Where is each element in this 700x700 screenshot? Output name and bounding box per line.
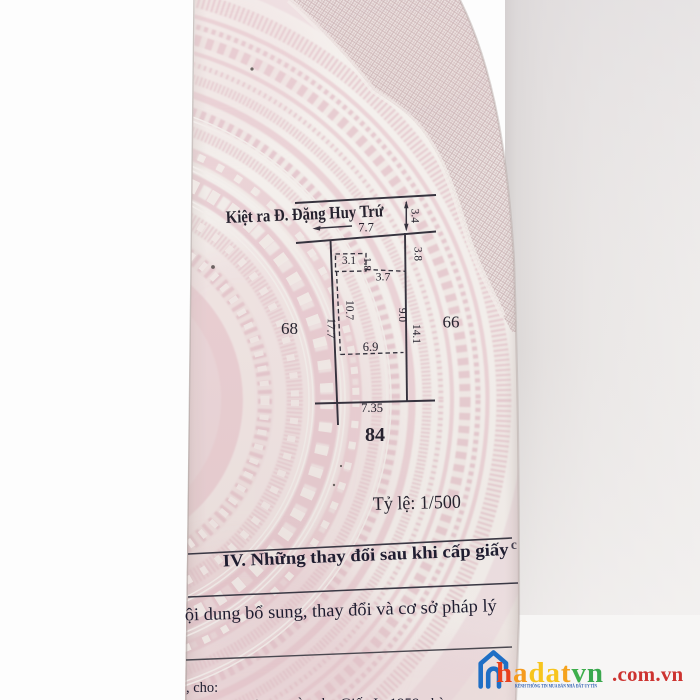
svg-text:, cho:: , cho:: [186, 680, 218, 696]
svg-text:KÊNH THÔNG TIN MUA BÁN NHÀ ĐẤT: KÊNH THÔNG TIN MUA BÁN NHÀ ĐẤT UY TÍN: [515, 684, 597, 690]
svg-text:3.7: 3.7: [376, 270, 391, 284]
svg-text:14.1: 14.1: [410, 324, 422, 344]
svg-text:84: 84: [365, 424, 385, 446]
svg-text:.com.vn: .com.vn: [612, 662, 684, 686]
svg-text:7.7: 7.7: [358, 221, 374, 235]
svg-text:17.7: 17.7: [324, 318, 338, 339]
svg-text:trang này cho Giấy In 1959 nhà: trang này cho Giấy In 1959 nhà: [255, 696, 445, 700]
svg-text:c: c: [511, 537, 518, 552]
svg-text:10.7: 10.7: [343, 300, 355, 320]
svg-text:9.0: 9.0: [396, 308, 408, 323]
svg-text:3.1: 3.1: [342, 255, 356, 267]
svg-text:68: 68: [281, 319, 298, 338]
svg-text:1.8: 1.8: [361, 257, 373, 271]
svg-text:7.35: 7.35: [361, 401, 383, 415]
svg-text:66: 66: [443, 313, 460, 332]
svg-text:6.9: 6.9: [363, 340, 379, 354]
svg-text:3.8: 3.8: [411, 247, 423, 262]
svg-text:3.4: 3.4: [409, 209, 421, 224]
svg-text:Tỷ lệ: 1/500: Tỷ lệ: 1/500: [373, 492, 462, 515]
